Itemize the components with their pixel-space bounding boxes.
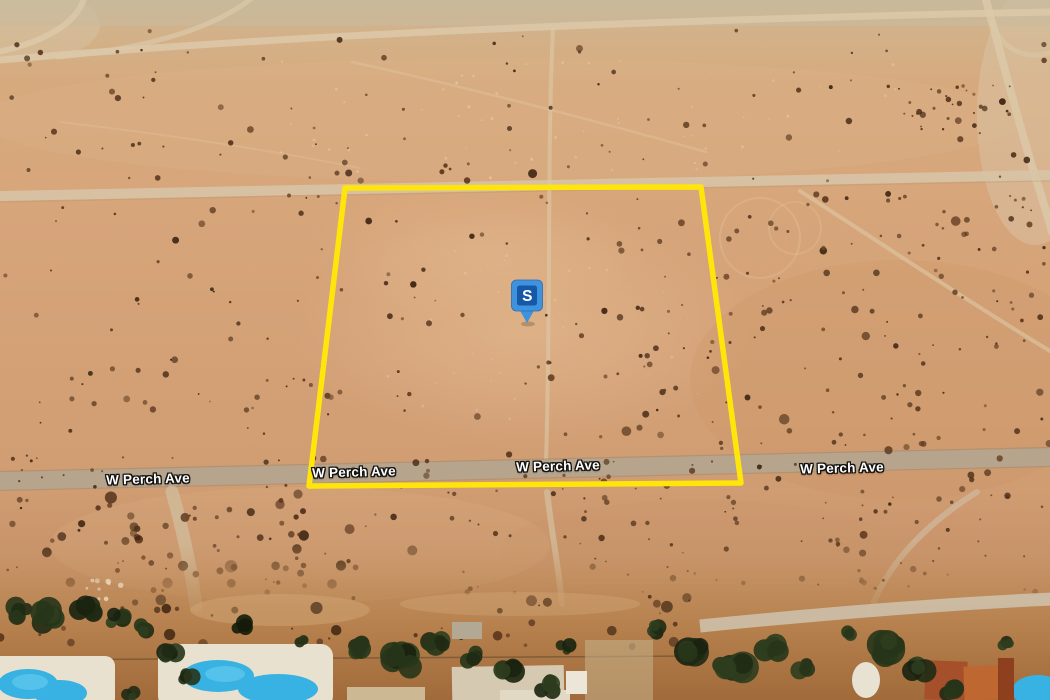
small-building xyxy=(566,671,587,694)
street-label-w-perch-ave-3: W Perch Ave xyxy=(516,457,600,474)
house-roof xyxy=(347,687,425,700)
red-roof xyxy=(963,665,1000,700)
marker-label: S xyxy=(522,288,532,305)
red-roof xyxy=(998,658,1014,700)
residential-strip xyxy=(0,540,1050,700)
street-label-w-perch-ave-2: W Perch Ave xyxy=(312,463,396,480)
shed-roof xyxy=(452,622,482,639)
street-label-w-perch-ave-1: W Perch Ave xyxy=(106,470,190,487)
satellite-map[interactable]: S W Perch Ave W Perch Ave W Perch Ave W … xyxy=(0,0,1050,700)
map-canvas: S xyxy=(0,0,1050,700)
marker-shadow xyxy=(521,322,535,327)
street-label-w-perch-ave-4: W Perch Ave xyxy=(800,459,884,476)
white-structure xyxy=(852,662,880,698)
concrete-pad xyxy=(585,640,653,700)
